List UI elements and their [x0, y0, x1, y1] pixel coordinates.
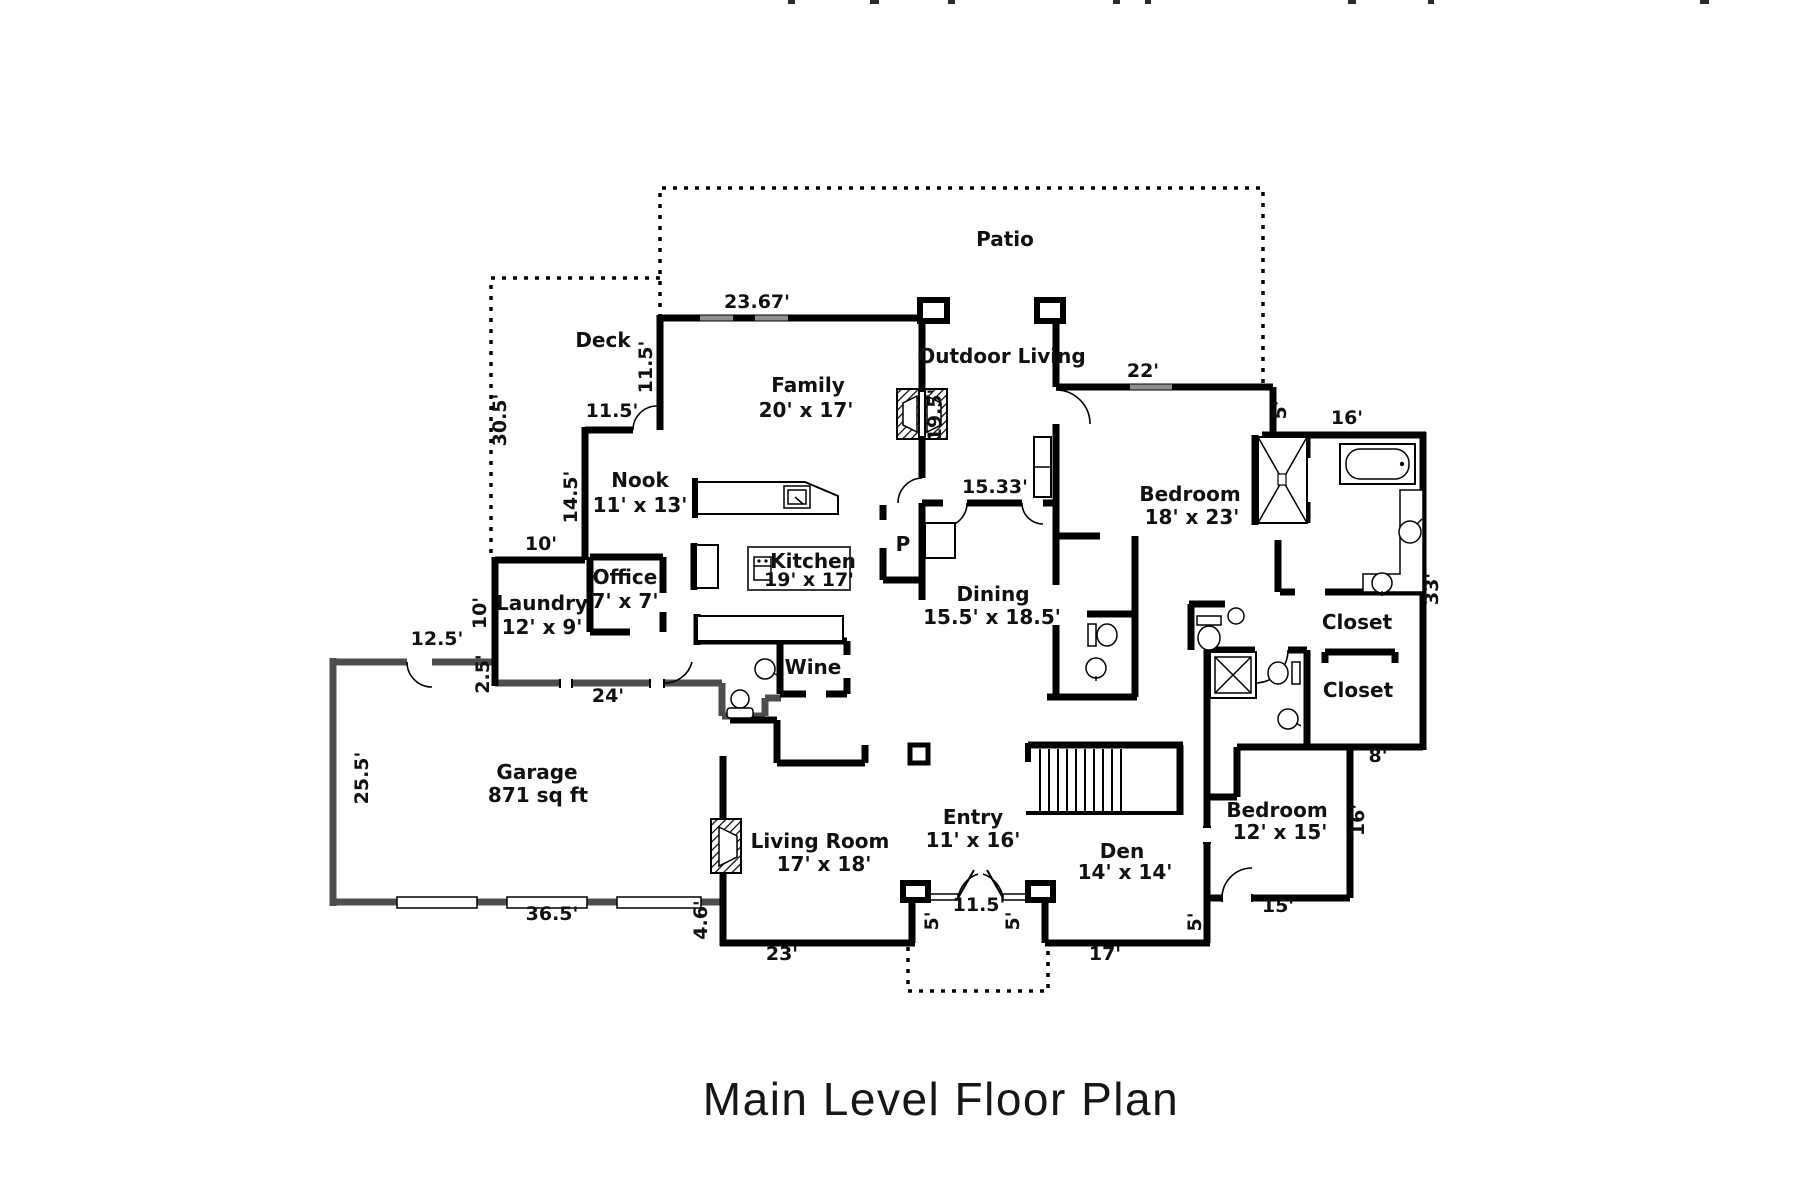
room-label-family: Family — [771, 373, 845, 397]
page-title: Main Level Floor Plan — [703, 1073, 1179, 1125]
living-room-fireplace — [711, 819, 741, 873]
dining-post — [910, 745, 928, 763]
room-dims-bedroom-master: 18' x 23' — [1145, 505, 1240, 529]
room-label-living-room: Living Room — [751, 829, 890, 853]
dim-dining-top: 15.33' — [962, 476, 1028, 498]
outdoor-pillar-left — [920, 300, 947, 321]
dim-garage-left: 25.5' — [351, 752, 373, 805]
dim-deck-side: 30.5' — [489, 394, 511, 447]
dim-garage-top: 12.5' — [411, 628, 464, 650]
room-label-wine: Wine — [785, 655, 842, 679]
dining-bath-sink-icon — [1086, 658, 1106, 681]
master-toilet-icon — [1197, 616, 1221, 650]
dim-east-side: 33' — [1421, 573, 1443, 605]
room-dims-bedroom-2: 12' x 15' — [1233, 820, 1328, 844]
hall-fixtures — [727, 659, 779, 718]
dim-hall-wall: 24' — [592, 685, 624, 707]
dim-garage-bottom: 36.5' — [526, 903, 579, 925]
master-vanity — [1363, 490, 1423, 596]
top-edge-artifacts — [788, 0, 1709, 4]
dim-bedroom2-bottom: 15' — [1262, 895, 1294, 917]
staircase — [1026, 743, 1183, 813]
wine-sink-icon — [755, 659, 779, 679]
room-label-deck: Deck — [575, 328, 631, 352]
room-label-nook: Nook — [611, 468, 669, 492]
dim-den-bottom: 17' — [1089, 943, 1121, 965]
kitchen-island — [695, 482, 838, 514]
dim-entry-side-left: 5' — [921, 911, 943, 930]
dim-nook-top: 11.5' — [586, 400, 639, 422]
dim-family-top: 23.67' — [724, 291, 790, 313]
room-dims-dining: 15.5' x 18.5' — [923, 605, 1061, 629]
dim-bath-top: 16' — [1331, 407, 1363, 429]
powder-toilet-icon — [727, 690, 753, 718]
dim-living-bottom: 23' — [766, 943, 798, 965]
room-label-closet-1: Closet — [1322, 610, 1393, 634]
dim-entry-width: 11.5' — [953, 894, 1006, 916]
room-label-patio: Patio — [976, 227, 1034, 251]
dim-fireplace-wall: 19.5' — [924, 389, 946, 442]
dim-bedroom-top: 22' — [1127, 360, 1159, 382]
dim-entry-side-right: 5' — [1002, 911, 1024, 930]
hall-shower — [1210, 652, 1256, 698]
hall-toilet-icon — [1268, 662, 1300, 684]
room-dims-entry: 11' x 16' — [926, 828, 1021, 852]
room-label-closet-2: Closet — [1323, 678, 1394, 702]
room-label-entry: Entry — [943, 805, 1003, 829]
room-label-dining: Dining — [956, 582, 1029, 606]
room-dims-family: 20' x 17' — [759, 398, 854, 422]
dim-bedroom2-side: 16' — [1347, 804, 1369, 836]
room-label-laundry: Laundry — [496, 591, 588, 615]
room-label-garage: Garage — [496, 760, 577, 784]
room-label-office: Office — [593, 565, 658, 589]
dim-closet-bottom: 8' — [1368, 745, 1387, 767]
dim-laundry-left: 10' — [469, 597, 491, 629]
island-sink-icon — [784, 486, 810, 508]
entry-porch-outline — [908, 947, 1048, 991]
bedroom2-bath-fixtures — [1210, 652, 1301, 729]
floor-plan-drawing: Patio Deck Family 20' x 17' Outdoor Livi… — [0, 0, 1800, 1200]
hall-sink-icon — [1278, 709, 1301, 729]
room-dims-office: 7' x 7' — [592, 589, 659, 613]
dining-cabinet — [925, 523, 955, 558]
dim-living-jog: 4.6' — [690, 900, 712, 939]
room-label-bedroom-master: Bedroom — [1139, 482, 1240, 506]
room-dims-laundry: 12' x 9' — [502, 615, 583, 639]
room-dims-garage: 871 sq ft — [488, 783, 589, 807]
room-dims-nook: 11' x 13' — [593, 493, 688, 517]
dining-bath-toilet-icon — [1088, 624, 1117, 646]
dim-bath-jog: 5' — [1269, 400, 1291, 419]
dim-laundry-top: 10' — [525, 533, 557, 555]
dim-nook-left: 14.5' — [560, 471, 582, 524]
entry-pillar-left — [903, 883, 928, 900]
master-shower — [1258, 437, 1307, 523]
entry-pillar-right — [1028, 883, 1053, 900]
kitchen-cabinet — [696, 545, 718, 588]
dim-den-side: 5' — [1184, 912, 1206, 931]
room-dims-living-room: 17' x 18' — [777, 852, 872, 876]
room-label-outdoor-living: Outdoor Living — [918, 344, 1085, 368]
dim-laundry-jog: 2.5' — [472, 654, 494, 693]
dim-family-left: 11.5' — [635, 341, 657, 394]
room-dims-den: 14' x 14' — [1078, 860, 1173, 884]
floor-plan-page: Patio Deck Family 20' x 17' Outdoor Livi… — [0, 0, 1800, 1200]
room-dims-kitchen: 19' x 17' — [764, 569, 854, 591]
room-label-pantry: P — [896, 532, 911, 556]
dining-bath-fixtures — [1086, 624, 1117, 681]
outdoor-pillar-right — [1037, 300, 1063, 321]
kitchen-counter — [697, 616, 843, 641]
master-bathtub — [1340, 444, 1415, 484]
room-label-bedroom-2: Bedroom — [1226, 798, 1327, 822]
master-wc-sink-icon — [1228, 608, 1244, 624]
